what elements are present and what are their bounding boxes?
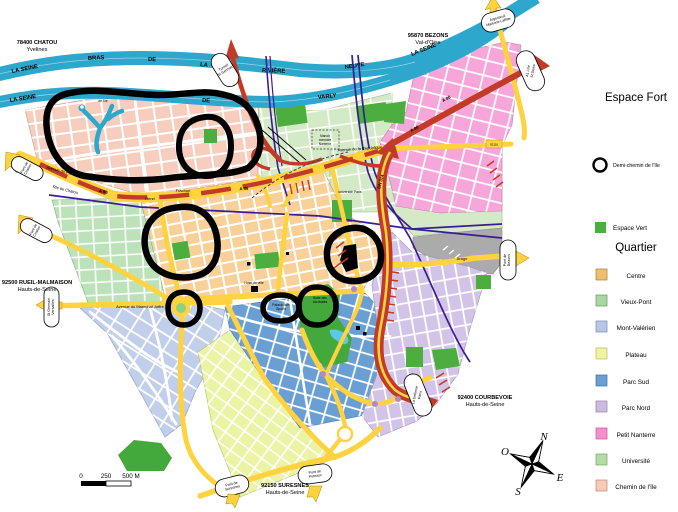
svg-text:DE: DE: [202, 98, 211, 105]
svg-text:78400 CHATOU: 78400 CHATOU: [17, 40, 58, 46]
svg-text:Parc Nord: Parc Nord: [622, 405, 651, 412]
svg-text:université Paris: université Paris: [338, 190, 361, 194]
svg-text:500 M: 500 M: [122, 473, 140, 480]
svg-text:LA: LA: [200, 62, 209, 69]
svg-text:Henri: Henri: [145, 196, 155, 201]
svg-text:Versailles: Versailles: [51, 299, 55, 315]
svg-text:Avenue du Marechal Joffre: Avenue du Marechal Joffre: [116, 304, 164, 309]
svg-text:Demi-chemin de l'île: Demi-chemin de l'île: [613, 163, 660, 169]
svg-text:Frachon: Frachon: [176, 188, 191, 193]
svg-text:Arago: Arago: [457, 256, 468, 261]
svg-text:BRAS: BRAS: [88, 55, 105, 62]
svg-text:95870 BEZONS: 95870 BEZONS: [408, 33, 449, 39]
svg-text:92150 SURESNES: 92150 SURESNES: [261, 483, 309, 489]
svg-text:92500 RUEIL-MALMAISON: 92500 RUEIL-MALMAISON: [2, 280, 72, 286]
svg-text:Av Frederic: Av Frederic: [280, 294, 300, 299]
svg-text:92110: 92110: [490, 143, 498, 147]
svg-text:A 86: A 86: [239, 186, 249, 191]
svg-text:N: N: [539, 431, 548, 443]
svg-text:Petit Nanterre: Petit Nanterre: [617, 432, 656, 439]
svg-text:Centre: Centre: [627, 273, 646, 280]
svg-text:Mont-Valérien: Mont-Valérien: [617, 325, 656, 332]
svg-text:Hotel de ville: Hotel de ville: [244, 281, 264, 285]
svg-text:S: S: [515, 486, 521, 498]
svg-text:Val-d'Oise: Val-d'Oise: [415, 40, 440, 46]
svg-text:0: 0: [79, 473, 83, 480]
svg-text:Hauts-de-Seine: Hauts-de-Seine: [466, 402, 505, 408]
svg-text:de l'ile: de l'ile: [99, 99, 108, 103]
svg-text:Quartier: Quartier: [615, 242, 657, 254]
svg-text:Vieux-Pont: Vieux-Pont: [621, 299, 652, 306]
svg-text:Université: Université: [622, 458, 650, 465]
svg-text:Hauts-de-Seine: Hauts-de-Seine: [18, 287, 57, 293]
svg-text:E: E: [556, 472, 564, 484]
svg-text:Yvelines: Yvelines: [27, 47, 48, 53]
svg-text:Hauts-de-Seine: Hauts-de-Seine: [266, 490, 305, 496]
svg-text:92400 COURBEVOIE: 92400 COURBEVOIE: [458, 395, 513, 401]
svg-text:Acrobates: Acrobates: [313, 300, 328, 304]
svg-text:Espace Fort: Espace Fort: [605, 92, 668, 104]
svg-text:Martin: Martin: [180, 202, 191, 207]
svg-text:Chemin de l'île: Chemin de l'île: [615, 484, 657, 491]
svg-text:O: O: [501, 446, 509, 458]
svg-text:Nanterre: Nanterre: [319, 142, 332, 146]
svg-text:Plateau: Plateau: [625, 352, 647, 359]
svg-text:DE: DE: [148, 57, 156, 63]
svg-text:250: 250: [101, 473, 112, 480]
svg-text:Sports: Sports: [276, 307, 286, 311]
svg-text:Bezons: Bezons: [507, 254, 511, 266]
svg-text:Rte de Chatou: Rte de Chatou: [52, 184, 78, 195]
svg-text:Parc Sud: Parc Sud: [623, 379, 649, 386]
svg-text:Espace Vert: Espace Vert: [613, 225, 647, 232]
